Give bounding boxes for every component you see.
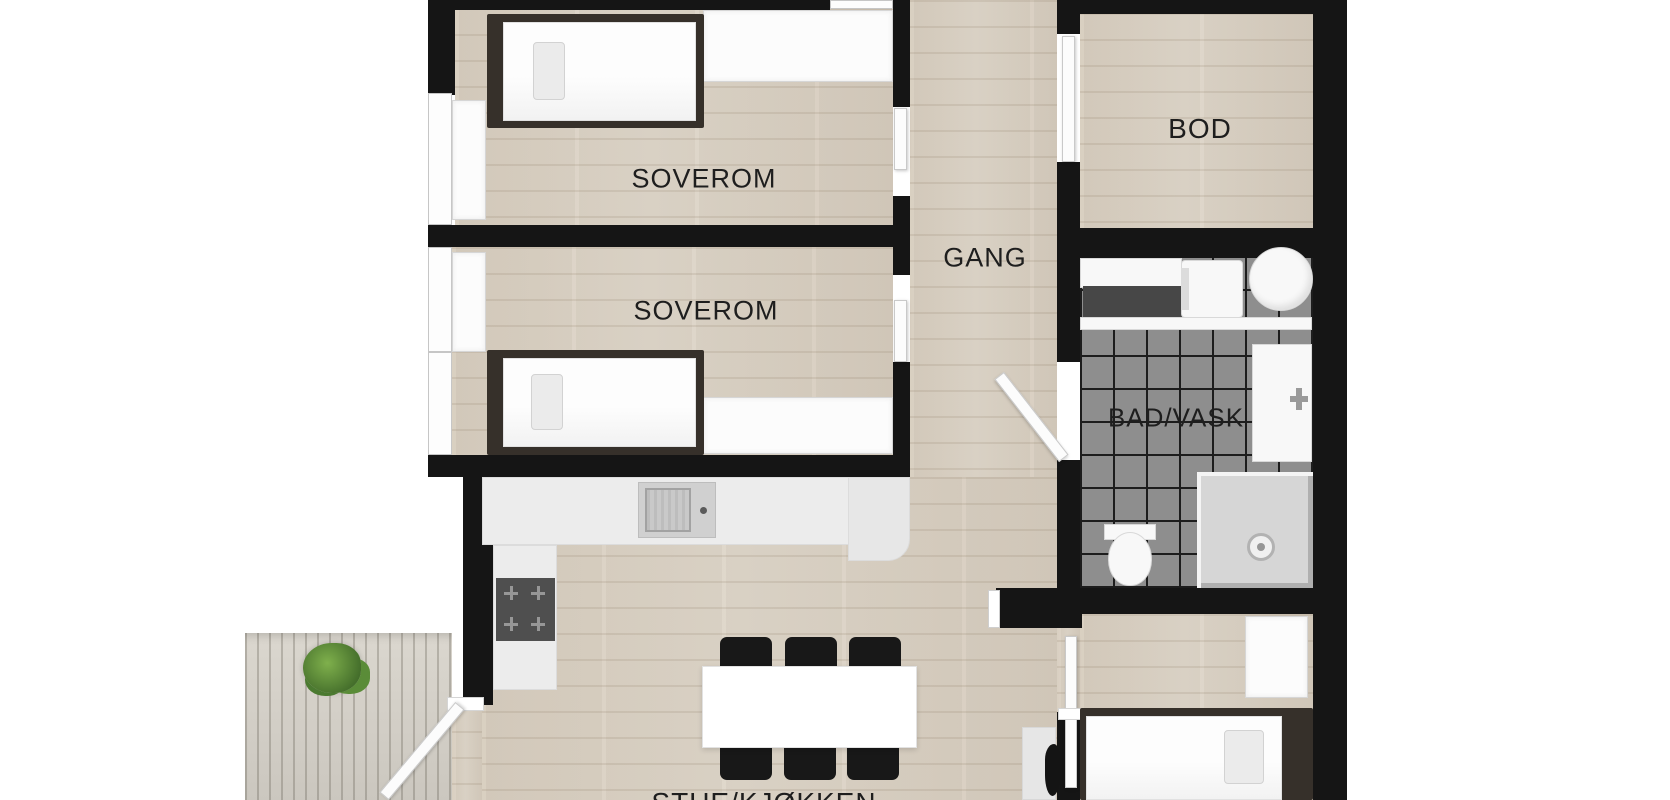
floorplan-canvas: SOVEROM SOVEROM GANG BOD BAD/VASK STUE/K — [0, 0, 1670, 800]
right-exterior-wall — [1313, 0, 1347, 800]
bedroom2-label: SOVEROM — [633, 296, 778, 327]
bedroom1-pillow — [533, 42, 565, 100]
stove-burner — [503, 585, 519, 601]
kitchen-sink-basin — [645, 488, 691, 532]
wall-bed1-bed2 — [428, 225, 910, 247]
stub-end-cap — [988, 590, 1000, 628]
bedroom2-bottom-wardrobe — [703, 397, 893, 454]
hallway-label: GANG — [943, 243, 1027, 274]
bathroom-label: BAD/VASK — [1108, 403, 1244, 434]
wall-gang-bod-lower — [1057, 162, 1080, 362]
wall-bed2-kitchen — [428, 455, 910, 477]
wall-bedrooms-gang-3 — [893, 247, 910, 275]
bedroom1-door — [894, 108, 907, 170]
wall-bedrooms-gang-4 — [893, 362, 910, 455]
bathroom-shelf — [1080, 317, 1312, 330]
stove-burner — [530, 585, 546, 601]
terrace-plant — [303, 643, 361, 693]
storage-door — [1062, 36, 1075, 162]
shower-pan — [1197, 472, 1313, 588]
bedroom2-pillow — [531, 374, 563, 430]
dining-chair — [784, 744, 836, 780]
wall-gang-bod-stub — [1057, 0, 1080, 34]
left-window-1 — [428, 93, 452, 225]
dining-chair — [847, 744, 899, 780]
stove-burner — [503, 616, 519, 632]
left-window-2 — [428, 247, 452, 352]
bedroom3-pillow — [1224, 730, 1264, 784]
bedroom1-label: SOVEROM — [631, 164, 776, 195]
left-window-3 — [428, 352, 452, 455]
bedroom1-top-wardrobe — [703, 10, 893, 82]
toilet-bowl — [1108, 532, 1152, 586]
shower-head-dot — [1257, 543, 1265, 551]
kitchen-faucet — [700, 507, 707, 514]
stove — [496, 578, 555, 641]
wall-bath-bottom-stub — [996, 588, 1082, 628]
hallway-floor — [910, 0, 1057, 477]
bathroom-vanity-top — [1080, 258, 1182, 288]
living-floor-left-patch — [452, 705, 482, 800]
living-kitchen-label: STUE/KJØKKEN — [651, 787, 876, 800]
lounge-chair — [1045, 744, 1060, 796]
top-window — [830, 0, 893, 9]
wall-bedrooms-gang-1 — [893, 0, 910, 107]
water-heater — [1249, 247, 1313, 311]
kitchen-counter-corner — [848, 477, 910, 561]
wall-bedrooms-gang-2 — [893, 196, 910, 229]
washing-machine — [1181, 260, 1243, 318]
bedroom3-closet — [1245, 616, 1308, 698]
bedroom1-left-closet — [452, 100, 486, 220]
storage-label: BOD — [1168, 113, 1232, 145]
wall-gang-bath-lower — [1057, 460, 1080, 588]
sink-faucet-handle — [1296, 388, 1302, 410]
left-exterior-wall-top — [428, 0, 455, 95]
top-exterior-wall-left — [428, 0, 830, 10]
bathroom-sink-vanity — [1252, 344, 1312, 462]
bedroom2-door — [894, 300, 907, 362]
top-exterior-wall-right — [1080, 0, 1313, 14]
wall-bath-bottom — [1082, 588, 1313, 614]
bedroom2-left-closet — [452, 252, 486, 352]
bedroom1-bed — [503, 22, 696, 121]
dining-table — [702, 666, 917, 748]
washing-machine-panel — [1181, 268, 1189, 310]
stove-burner — [530, 616, 546, 632]
bathroom-counter-dark — [1083, 286, 1182, 319]
dining-chair — [720, 744, 772, 780]
